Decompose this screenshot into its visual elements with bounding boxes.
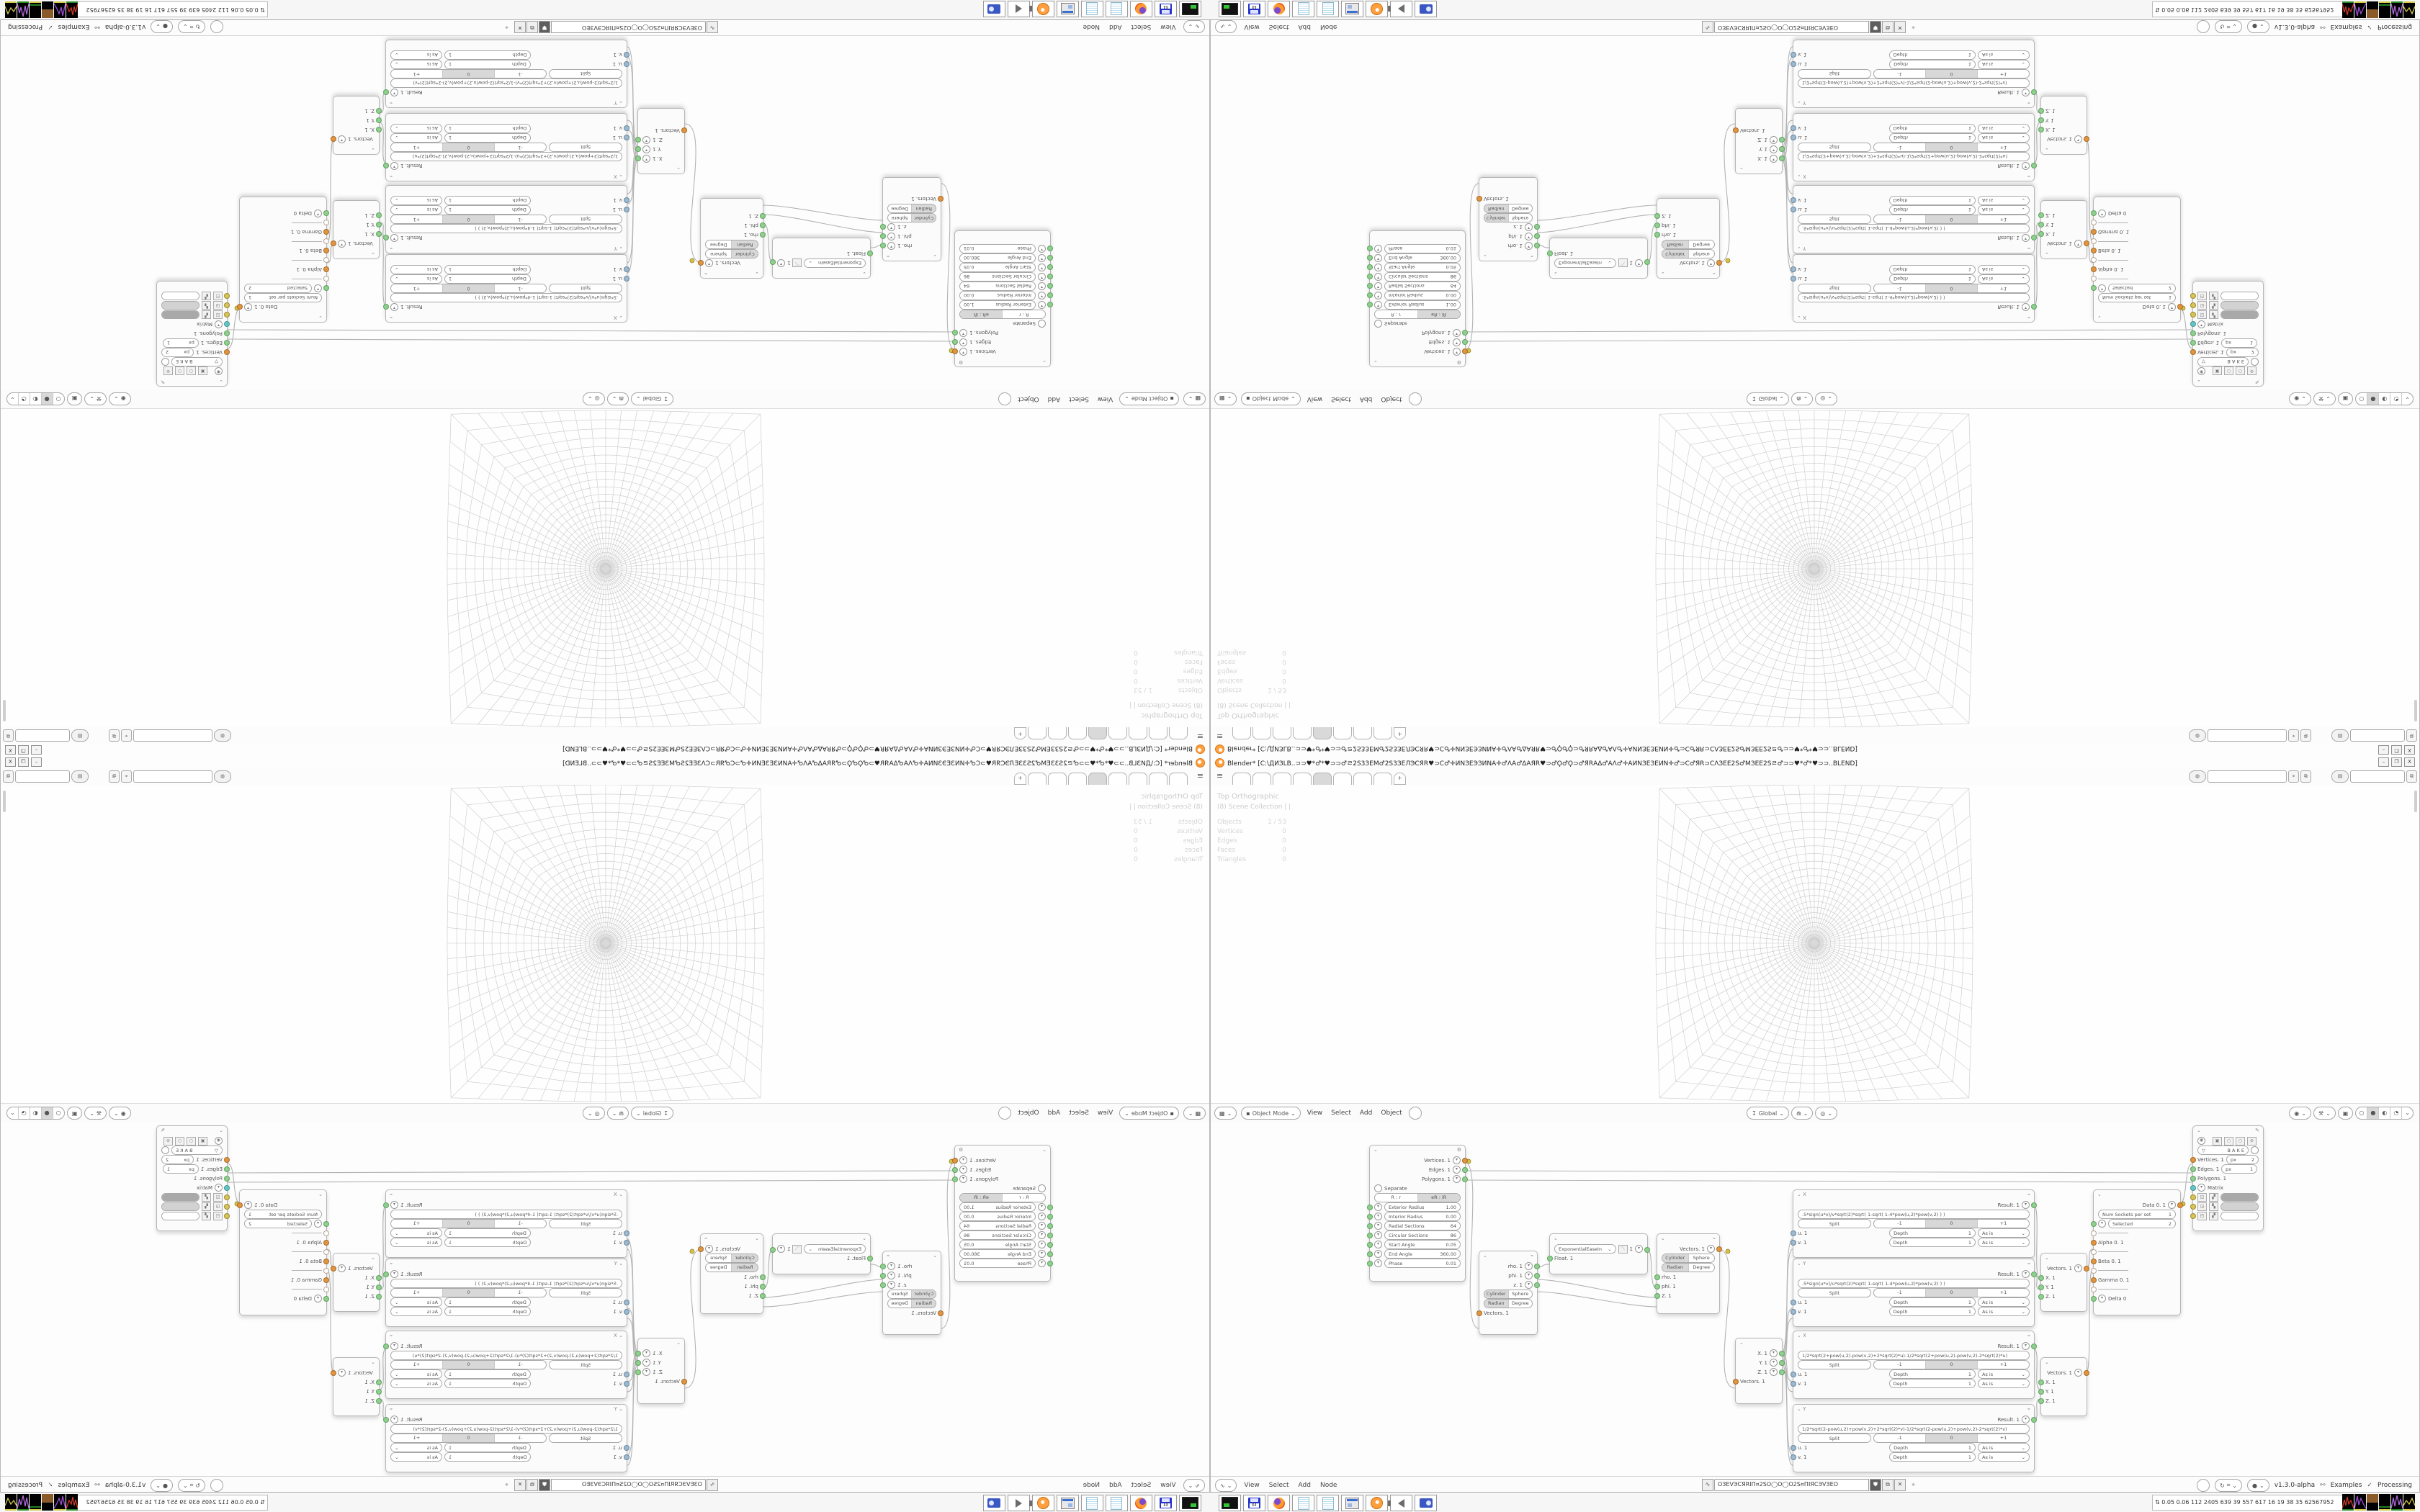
socket-result-out[interactable]	[2031, 304, 2037, 310]
viewport-3d[interactable]: Top Orthographic (8) Scene Collection | …	[1, 409, 1209, 727]
split-button[interactable]: Split	[549, 215, 622, 224]
socket-matrix-in[interactable]	[224, 1185, 230, 1191]
mode-dropdown[interactable]: ▪Object Mode⌄	[1241, 1107, 1301, 1120]
socket-y-in[interactable]	[2038, 1284, 2044, 1290]
socket-alpha-in[interactable]	[2091, 266, 2097, 272]
circle-param-row[interactable]: ▾Circular Sections86	[1370, 1230, 1465, 1240]
separate-checkbox[interactable]	[1374, 320, 1382, 328]
workspace-tab-6[interactable]	[1333, 727, 1352, 739]
socket-y-in[interactable]	[2038, 222, 2044, 228]
tool-circle-button[interactable]	[1409, 1107, 1422, 1120]
socket-result-out[interactable]	[2031, 163, 2037, 168]
display-toggle-a[interactable]: ○	[187, 367, 196, 376]
socket-polygons-in[interactable]	[2190, 1176, 2196, 1182]
taskbar-icon-projector[interactable]	[1415, 1495, 1437, 1511]
formula-field[interactable]: .5*sign(u*v)/u*sqrt(2)*sqrt( 1-sqrt( 1-4…	[1798, 1279, 2030, 1288]
socket-y-in[interactable]	[376, 117, 382, 123]
angle-unit-toggle[interactable]: RadianDegree	[887, 1299, 936, 1308]
socket-x-out[interactable]	[635, 1351, 641, 1356]
socket-v-in[interactable]	[1791, 197, 1796, 203]
socket-v-in[interactable]	[624, 197, 629, 203]
socket-x-in[interactable]	[376, 1275, 382, 1281]
orientation-dropdown[interactable]: ↧Global⌄	[1747, 392, 1789, 405]
split-button[interactable]: Split	[549, 1219, 622, 1228]
display-toggle-b[interactable]: ○	[2236, 367, 2245, 376]
socket-z-out[interactable]	[1779, 137, 1785, 143]
processing-toggle[interactable]: Processing	[2378, 1482, 2412, 1489]
minimize-button[interactable]: –	[2378, 745, 2389, 755]
tool-circle-button[interactable]	[998, 1107, 1011, 1120]
workspace-tab-1[interactable]	[1232, 773, 1251, 785]
formula-field[interactable]: .5*sign(u*v)/v*sqrt(2)*sqrt( 1-sqrt( 1-4…	[1798, 1210, 2030, 1219]
socket-empty-slot[interactable]	[323, 276, 329, 282]
copy-datablock-icon[interactable]: ⧉	[1882, 21, 1894, 33]
edge-color-slider[interactable]	[161, 1202, 200, 1211]
socket-rho-in[interactable]	[1654, 232, 1660, 238]
socket-rho-in[interactable]	[1654, 1274, 1660, 1280]
depth-field[interactable]: Depth1	[444, 1297, 531, 1307]
close-button[interactable]: X	[5, 745, 16, 755]
bake-button[interactable]: ▽B A K E	[2197, 1146, 2249, 1155]
socket-v-in[interactable]	[624, 1309, 629, 1315]
depth-field[interactable]: Depth1	[444, 205, 531, 215]
socket-vectors-in[interactable]	[681, 127, 687, 133]
node-vector-in-b[interactable]: ⌄Vectors. 1▾X. 1Y. 1Z. 1	[333, 1357, 380, 1416]
socket-x-in[interactable]	[376, 231, 382, 237]
socket-rho-out[interactable]	[880, 243, 886, 248]
depth-field[interactable]: Depth1	[1889, 205, 1976, 215]
node-vector-polar-output[interactable]: ⌄⌁ rho. 1▾ phi. 1▾ z. 1▾ CylinderSphere …	[1479, 177, 1538, 261]
socket-easing-out[interactable]	[1644, 1247, 1650, 1253]
gear-icon[interactable]: ⚙	[1457, 356, 1461, 365]
socket-y-out[interactable]	[1779, 146, 1785, 152]
taskbar-icon-window-app[interactable]	[1341, 1495, 1363, 1511]
workspace-tab-1[interactable]	[1169, 727, 1188, 739]
socket-v-in[interactable]	[1791, 266, 1796, 272]
split-button[interactable]: Split	[549, 1360, 622, 1369]
split-button[interactable]: Split	[1798, 215, 1871, 224]
tree-type-icon[interactable]: ∿	[707, 1479, 718, 1491]
socket-result-out[interactable]	[2031, 1417, 2037, 1423]
taskbar-icon-floppy-64[interactable]: 64	[1243, 1, 1265, 17]
view-layer-name-field[interactable]	[2350, 770, 2405, 783]
menu-hamburger-icon[interactable]: ≡	[1216, 732, 1223, 741]
socket-z-in[interactable]	[376, 108, 382, 114]
socket-vectors-out[interactable]	[331, 240, 336, 246]
node-editor-type-button[interactable]: ∿⌄	[1183, 1479, 1205, 1492]
xray-toggle[interactable]: ▣	[67, 1107, 83, 1120]
xray-toggle[interactable]: ▣	[2338, 1107, 2354, 1120]
step-buttons[interactable]: -10+1	[390, 1288, 547, 1297]
socket-vectors-out[interactable]	[698, 260, 704, 266]
socket-y-in[interactable]	[376, 222, 382, 228]
taskbar-icon-blender[interactable]	[1032, 1, 1054, 17]
socket-u-in[interactable]	[624, 1445, 629, 1451]
workspace-tab-2[interactable]	[1149, 773, 1168, 785]
menu-object[interactable]: Object	[1016, 394, 1041, 404]
node-data-list-input[interactable]: ⌄ Data 0. 1▾ Num Sockets per set1 ▾Selec…	[2093, 1189, 2181, 1315]
workspace-tab-4[interactable]	[1293, 727, 1312, 739]
menu-view[interactable]: View	[1242, 1480, 1261, 1490]
tray-graph-icon-3[interactable]	[42, 1494, 53, 1511]
formula-field[interactable]: .5*sign(u*v)/u*sqrt(2)*sqrt( 1-sqrt( 1-4…	[390, 224, 622, 233]
scene-selector-icon[interactable]: ◍	[214, 730, 231, 742]
display-toggle-a[interactable]: ○	[187, 1137, 196, 1146]
socket-result-out[interactable]	[383, 304, 389, 310]
circle-param-row[interactable]: ▾Circular Sections86	[955, 1230, 1050, 1240]
node-formula-y-2[interactable]: ⌄ Y⌁Result. 1▾1/2*sqrt(2-pow(u,2)+pow(v,…	[1793, 1404, 2035, 1472]
editor-type-button[interactable]: ▦⌄	[1183, 1107, 1206, 1120]
socket-z-in[interactable]	[2038, 1294, 2044, 1300]
socket-vectors-out[interactable]	[331, 1370, 336, 1376]
socket-empty-slot[interactable]	[323, 1268, 329, 1274]
socket-x-in[interactable]	[2038, 1380, 2044, 1385]
pin-icon[interactable]: ⌖	[1912, 1482, 1915, 1489]
socket-empty-slot[interactable]	[323, 1230, 329, 1236]
as-is-dropdown[interactable]: As is⌄	[390, 1297, 442, 1307]
menu-view[interactable]: View	[1095, 1108, 1115, 1118]
xray-toggle[interactable]: ▣	[67, 392, 83, 405]
socket-vectors-out[interactable]	[2084, 1266, 2089, 1272]
circle-param-row[interactable]: ▾Interior Radius0.00	[955, 291, 1050, 300]
tray-graph-icon-3[interactable]	[42, 1, 53, 18]
taskbar-icon-window-app[interactable]	[1341, 1, 1363, 17]
workspace-tab-4[interactable]	[1108, 773, 1127, 785]
node-easing[interactable]: ⌄ ExponentialEaseIn⌄ 〽 1▾ Float. 1	[772, 238, 871, 279]
workspace-tab-5[interactable]	[1313, 727, 1332, 739]
socket-z-in[interactable]	[376, 212, 382, 218]
sverchok-node-editor[interactable]: ⌄⚙ Vertices. 1▾ Edges. 1▾ Polygons. 1▾ S…	[1, 1122, 1209, 1476]
depth-field[interactable]: Depth1	[444, 133, 531, 143]
socket-z-in[interactable]	[2038, 108, 2044, 114]
separate-checkbox[interactable]	[1374, 1184, 1382, 1192]
num-sockets-field[interactable]: Num Sockets per set1	[2098, 1210, 2176, 1219]
scene-copy-icon[interactable]: ⧉	[2300, 730, 2311, 742]
view-layer-selector-icon[interactable]: ▤	[71, 730, 89, 742]
angle-unit-toggle[interactable]: RadianDegree	[1484, 204, 1533, 213]
split-button[interactable]: Split	[549, 1434, 622, 1443]
face-color-slider[interactable]	[2220, 292, 2259, 301]
socket-x-out[interactable]	[635, 156, 641, 161]
socket-matrix-in[interactable]	[224, 321, 230, 327]
step-buttons[interactable]: -10+1	[1873, 1434, 2030, 1443]
bake-options-circle[interactable]	[2251, 1146, 2259, 1154]
socket-vectors-out[interactable]	[2084, 240, 2089, 246]
socket-y-in[interactable]	[2038, 1389, 2044, 1395]
processing-toggle[interactable]: Processing	[8, 23, 42, 30]
scene-selector-icon[interactable]: ◍	[214, 770, 231, 783]
socket-rho-out[interactable]	[880, 1264, 886, 1269]
socket-vectors-in[interactable]	[1476, 196, 1482, 202]
socket-vertices-out[interactable]	[952, 348, 958, 354]
coordinate-system-toggle[interactable]: CylinderSphere	[1484, 1290, 1533, 1299]
socket-edges-in[interactable]	[2190, 1166, 2196, 1172]
edge-color-slider[interactable]	[161, 302, 200, 310]
as-is-dropdown[interactable]: As is⌄	[1978, 205, 2030, 215]
socket-vectors-out[interactable]	[2084, 136, 2089, 142]
step-buttons[interactable]: -10+1	[1873, 143, 2030, 152]
socket-alpha-in[interactable]	[323, 266, 329, 272]
node-tree-name-field[interactable]: ОЗЕVЭСЯRIП¤2SO◯O◯O2S¤ПIЯСЭVЗЕО	[551, 21, 706, 33]
step-buttons[interactable]: -10+1	[390, 284, 547, 293]
socket-vertices-in[interactable]	[224, 1157, 230, 1163]
node-formula-y-1[interactable]: ⌄ Y⌁Result. 1▾.5*sign(u*v)/u*sqrt(2)*sqr…	[385, 185, 627, 253]
bake-button[interactable]: ▽B A K E	[171, 1146, 223, 1155]
socket-vectors-in[interactable]	[938, 1310, 944, 1316]
node-formula-x-1[interactable]: ⌄ X⌁Result. 1▾.5*sign(u*v)/v*sqrt(2)*sqr…	[1793, 1189, 2035, 1258]
tray-graph-icon-1[interactable]	[66, 1494, 78, 1511]
draft-mode-pill[interactable]: ●⌄	[2247, 1479, 2269, 1492]
socket-polygons-out[interactable]	[952, 330, 958, 336]
socket-phi-out[interactable]	[880, 1273, 886, 1279]
socket-x-in[interactable]	[2038, 127, 2044, 132]
circle-param-row[interactable]: ▾Radial Sections64	[955, 1221, 1050, 1230]
menu-select[interactable]: Select	[1267, 1480, 1291, 1490]
menu-node[interactable]: Node	[1081, 22, 1103, 32]
workspace-tab-8[interactable]	[1373, 773, 1392, 785]
node-vector-out[interactable]: ⌄ X. 1▾ Y. 1▾ Z. 1▾ Vectors. 1	[637, 108, 685, 174]
node-editor-type-button[interactable]: ∿⌄	[1183, 20, 1205, 33]
as-is-dropdown[interactable]: As is⌄	[390, 1228, 442, 1238]
layout-tools-pill[interactable]: ↻⌗⌄	[2215, 1479, 2242, 1492]
workspace-tab-8[interactable]	[1373, 727, 1392, 739]
workspace-tab-1[interactable]	[1232, 727, 1251, 739]
menu-object[interactable]: Object	[1379, 394, 1404, 404]
node-formula-x-1[interactable]: ⌄ X⌁Result. 1▾.5*sign(u*v)/v*sqrt(2)*sqr…	[385, 1189, 627, 1258]
radius-mode-toggle[interactable]: R : reR : iR	[1374, 310, 1461, 319]
split-button[interactable]: Split	[1798, 1360, 1871, 1369]
draft-mode-pill[interactable]: ●⌄	[151, 20, 173, 33]
workspace-tab-8[interactable]	[1028, 727, 1047, 739]
tray-graph-icon-3[interactable]	[2367, 1494, 2378, 1511]
processing-toggle[interactable]: Processing	[8, 1482, 42, 1489]
node-viewer-draw[interactable]: ⌄✎ ◉ ▣ ○ ○ ⊘ ▽B A K E Vertices. 1px2 Edg…	[156, 281, 228, 387]
tool-circle-button[interactable]	[998, 392, 1011, 405]
node-easing[interactable]: ⌄ ExponentialEaseIn⌄ 〽 1▾ Float. 1	[1549, 238, 1648, 279]
sverchok-node-editor[interactable]: ⌄⚙ Vertices. 1▾ Edges. 1▾ Polygons. 1▾ S…	[1211, 36, 2419, 390]
menu-object[interactable]: Object	[1379, 1108, 1404, 1118]
taskbar-icon-firefox[interactable]	[1130, 1495, 1152, 1511]
taskbar-icon-notepad[interactable]	[1081, 1495, 1103, 1511]
snap-dropdown[interactable]: ⋒⌄	[607, 392, 629, 405]
snap-dropdown[interactable]: ⋒⌄	[1791, 392, 1813, 405]
socket-edges-in[interactable]	[224, 340, 230, 346]
editor-type-button[interactable]: ▦⌄	[1214, 392, 1237, 405]
scene-copy-icon[interactable]: ⧉	[109, 770, 120, 783]
depth-field[interactable]: Depth1	[444, 1369, 531, 1379]
gear-icon[interactable]: ⚙	[1457, 1147, 1461, 1156]
socket-gamma-in[interactable]	[323, 229, 329, 235]
workspace-tab-1[interactable]	[1169, 773, 1188, 785]
workspace-tab-8[interactable]	[1028, 773, 1047, 785]
minimize-button[interactable]: –	[2378, 757, 2389, 767]
socket-vectors-in[interactable]	[1733, 127, 1739, 133]
menu-add[interactable]: Add	[1358, 394, 1374, 404]
circle-param-row[interactable]: ▾Exterior Radius1.00	[955, 300, 1050, 310]
angle-unit-toggle[interactable]: RadianDegree	[1662, 240, 1715, 249]
circle-param-row[interactable]: ▾Radial Sections64	[1370, 1221, 1465, 1230]
radius-mode-toggle[interactable]: R : reR : iR	[1374, 1193, 1461, 1202]
node-vector-in-a[interactable]: ⌄Vectors. 1▾X. 1Y. 1Z. 1	[2040, 200, 2087, 259]
restore-button[interactable]: ❐	[18, 745, 29, 755]
node-circle-generator[interactable]: ⌄⚙ Vertices. 1▾ Edges. 1▾ Polygons. 1▾ S…	[954, 230, 1051, 367]
as-is-dropdown[interactable]: As is⌄	[1978, 1297, 2030, 1307]
node-vector-in-a[interactable]: ⌄Vectors. 1▾X. 1Y. 1Z. 1	[2040, 1253, 2087, 1312]
socket-data-out[interactable]	[2177, 304, 2183, 310]
socket-gamma-in[interactable]	[2091, 229, 2097, 235]
overlays-dropdown[interactable]: ◉⌄	[109, 1107, 131, 1120]
orientation-dropdown[interactable]: ↧Global⌄	[631, 1107, 673, 1120]
socket-empty-slot[interactable]	[323, 1249, 329, 1255]
easing-mode-dropdown[interactable]: ExponentialEaseIn⌄	[1554, 258, 1616, 268]
socket-phi-out[interactable]	[1534, 233, 1540, 239]
taskbar-icon-projector[interactable]	[1415, 1, 1437, 17]
socket-result-out[interactable]	[2031, 1272, 2037, 1277]
tray-graph-icon-2[interactable]	[2354, 1494, 2366, 1511]
socket-empty-slot[interactable]	[2091, 1249, 2097, 1255]
circle-param-row[interactable]: ▾End Angle360.00	[955, 1249, 1050, 1259]
depth-field[interactable]: Depth1	[444, 60, 531, 69]
node-tree-name-field[interactable]: ОЗЕVЭСЯRIП¤2SO◯O◯O2S¤ПIЯСЭVЗЕО	[1714, 1479, 1869, 1491]
view-layer-selector-icon[interactable]: ▤	[2331, 770, 2349, 783]
display-toggle-c[interactable]: ⊘	[163, 367, 173, 376]
socket-vertices-out[interactable]	[1462, 348, 1468, 354]
display-toggle-b[interactable]: ○	[2236, 1137, 2245, 1146]
socket-vertices-out[interactable]	[952, 1158, 958, 1164]
socket-u-in[interactable]	[1791, 61, 1796, 67]
angle-unit-toggle[interactable]: RadianDegree	[887, 204, 936, 213]
window-title-bar[interactable]: Blender* [C:\ДИЗLB..⊃⊃♥*♂*♥⊃⊃♂ㄹ2S3ЗЕМ♂2S…	[1211, 756, 2419, 769]
socket-empty-slot[interactable]	[323, 220, 329, 225]
socket-data-out[interactable]	[2177, 1202, 2183, 1208]
mode-dropdown[interactable]: ▪Object Mode⌄	[1119, 392, 1179, 405]
formula-field[interactable]: 1/2*sqrt(2+pow(u,2)-pow(v,2)+2*sqrt(2)*u…	[1798, 1351, 2030, 1360]
proportional-edit-dropdown[interactable]: ◎⌄	[583, 1107, 605, 1120]
tray-graph-icon-6[interactable]	[2403, 1494, 2415, 1511]
orientation-dropdown[interactable]: ↧Global⌄	[1747, 1107, 1789, 1120]
node-data-list-input[interactable]: ⌄ Data 0. 1▾ Num Sockets per set1 ▾Selec…	[239, 1189, 327, 1315]
easing-mode-dropdown[interactable]: ExponentialEaseIn⌄	[804, 1244, 866, 1254]
depth-field[interactable]: Depth1	[1889, 1228, 1976, 1238]
viewport-3d[interactable]: Top Orthographic (8) Scene Collection | …	[1211, 409, 2419, 727]
circle-param-row[interactable]: ▾Exterior Radius1.00	[1370, 1202, 1465, 1212]
scene-name-field[interactable]	[2208, 730, 2287, 742]
view-layer-copy-icon[interactable]: ⧉	[3, 770, 14, 783]
node-formula-x-1[interactable]: ⌄ X⌁Result. 1▾.5*sign(u*v)/v*sqrt(2)*sqr…	[385, 254, 627, 323]
angle-unit-toggle[interactable]: RadianDegree	[1484, 1299, 1533, 1308]
minimize-button[interactable]: –	[31, 745, 42, 755]
socket-z-out[interactable]	[880, 224, 886, 230]
edge-px-field[interactable]: px1	[2221, 1164, 2257, 1174]
formula-field[interactable]: 1/2*sqrt(2-pow(u,2)+pow(v,2)+2*sqrt(2)*v…	[1798, 1424, 2030, 1434]
socket-vectors-out[interactable]	[331, 1266, 336, 1272]
tray-graph-icon-1[interactable]	[66, 1, 78, 18]
socket-phi-in[interactable]	[1654, 222, 1660, 228]
viewer-eye-toggle[interactable]: ◉	[215, 1137, 223, 1145]
depth-field[interactable]: Depth1	[1889, 1297, 1976, 1307]
node-vector-out[interactable]: ⌄ X. 1▾ Y. 1▾ Z. 1▾ Vectors. 1	[1735, 108, 1783, 174]
sverchok-node-editor[interactable]: ⌄⚙ Vertices. 1▾ Edges. 1▾ Polygons. 1▾ S…	[1211, 1122, 2419, 1476]
depth-field[interactable]: Depth1	[1889, 133, 1976, 143]
menu-view[interactable]: View	[1158, 1480, 1178, 1490]
socket-u-in[interactable]	[1791, 135, 1796, 140]
socket-z-out[interactable]	[1534, 1282, 1540, 1288]
socket-empty-slot[interactable]	[323, 257, 329, 263]
tray-graph-icon-4[interactable]	[2379, 1, 2390, 18]
socket-v-in[interactable]	[1791, 1381, 1796, 1387]
node-vector-in-b[interactable]: ⌄Vectors. 1▾X. 1Y. 1Z. 1	[2040, 1357, 2087, 1416]
circle-param-row[interactable]: ▾Exterior Radius1.00	[955, 1202, 1050, 1212]
socket-u-in[interactable]	[624, 61, 629, 67]
node-vector-out[interactable]: ⌄ X. 1▾ Y. 1▾ Z. 1▾ Vectors. 1	[637, 1338, 685, 1404]
socket-phi-in[interactable]	[760, 222, 766, 228]
workspace-tab-4[interactable]	[1108, 727, 1127, 739]
examples-menu[interactable]: Examples	[2331, 1482, 2362, 1489]
bake-options-circle[interactable]	[2251, 358, 2259, 366]
workspace-tab-6[interactable]	[1068, 727, 1087, 739]
socket-result-out[interactable]	[383, 1272, 389, 1277]
fake-user-shield-icon[interactable]: ⛊	[539, 21, 550, 33]
viewport-3d[interactable]: Top Orthographic (8) Scene Collection | …	[1, 785, 1209, 1103]
node-viewer-draw[interactable]: ⌄✎ ◉ ▣ ○ ○ ⊘ ▽B A K E Vertices. 1px2 Edg…	[156, 1125, 228, 1231]
node-formula-y-1[interactable]: ⌄ Y⌁Result. 1▾.5*sign(u*v)/u*sqrt(2)*sqr…	[1793, 1259, 2035, 1327]
menu-select[interactable]: Select	[1267, 22, 1291, 32]
socket-result-out[interactable]	[383, 163, 389, 168]
socket-empty-slot[interactable]	[2091, 276, 2097, 282]
window-title-bar[interactable]: Blender* [C:\ДИЗLB..⊃⊃♥*♂*♥⊃⊃♂ㄹ2S3ЗЕМ♂2S…	[1, 743, 1209, 756]
split-button[interactable]: Split	[1798, 143, 1871, 152]
coordinate-system-toggle[interactable]: CylinderSphere	[887, 213, 936, 222]
socket-vectors-out[interactable]	[2084, 1370, 2089, 1376]
split-button[interactable]: Split	[1798, 284, 1871, 293]
socket-matrix-in[interactable]	[2190, 1185, 2196, 1191]
workspace-tab-4[interactable]	[1293, 773, 1312, 785]
restore-button[interactable]: ❐	[18, 757, 29, 767]
mode-dropdown[interactable]: ▪Object Mode⌄	[1119, 1107, 1179, 1120]
socket-y-out[interactable]	[1779, 1360, 1785, 1366]
window-title-bar[interactable]: Blender* [C:\ДИЗLB..⊃⊃♥*♂*♥⊃⊃♂ㄹ2S3ЗЕМ♂2S…	[1211, 743, 2419, 756]
as-is-dropdown[interactable]: As is⌄	[390, 1443, 442, 1452]
display-toggle-faces[interactable]: ▣	[2213, 367, 2222, 376]
step-buttons[interactable]: -10+1	[390, 1219, 547, 1228]
socket-u-in[interactable]	[624, 1300, 629, 1305]
menu-select[interactable]: Select	[1329, 1108, 1353, 1118]
shading-mode-buttons[interactable]: ○ ● ◐ ◔ ⌄	[6, 1107, 65, 1120]
node-formula-x-2[interactable]: ⌄ X⌁Result. 1▾1/2*sqrt(2+pow(u,2)-pow(v,…	[385, 113, 627, 181]
proportional-edit-dropdown[interactable]: ◎⌄	[1815, 1107, 1837, 1120]
socket-empty-slot[interactable]	[2091, 1287, 2097, 1292]
workspace-tab-5[interactable]	[1088, 773, 1107, 785]
socket-phi-out[interactable]	[1534, 1273, 1540, 1279]
draft-mode-pill[interactable]: ●⌄	[151, 1479, 173, 1492]
node-formula-y-2[interactable]: ⌄ Y⌁Result. 1▾1/2*sqrt(2-pow(u,2)+pow(v,…	[385, 1404, 627, 1472]
circle-param-row[interactable]: ▾Phase0.01	[955, 244, 1050, 253]
taskbar-icon-terminal[interactable]	[1179, 1495, 1201, 1511]
socket-z-in[interactable]	[1654, 213, 1660, 219]
socket-edges-in[interactable]	[2190, 340, 2196, 346]
socket-edges-out[interactable]	[1462, 339, 1468, 345]
workspace-tab-3[interactable]	[1273, 773, 1291, 785]
tray-graph-icon-2[interactable]	[54, 1494, 66, 1511]
split-button[interactable]: Split	[1798, 1219, 1871, 1228]
vertex-color-slider[interactable]	[161, 1193, 200, 1202]
taskbar-icon-notepad[interactable]	[1292, 1, 1314, 17]
formula-field[interactable]: 1/2*sqrt(2-pow(u,2)+pow(v,2)+2*sqrt(2)*v…	[390, 1424, 622, 1434]
sverchok-node-editor[interactable]: ⌄⚙ Vertices. 1▾ Edges. 1▾ Polygons. 1▾ S…	[1, 36, 1209, 390]
menu-view[interactable]: View	[1305, 394, 1325, 404]
radius-mode-toggle[interactable]: R : reR : iR	[959, 310, 1046, 319]
easing-mode-dropdown[interactable]: ExponentialEaseIn⌄	[1554, 1244, 1616, 1254]
